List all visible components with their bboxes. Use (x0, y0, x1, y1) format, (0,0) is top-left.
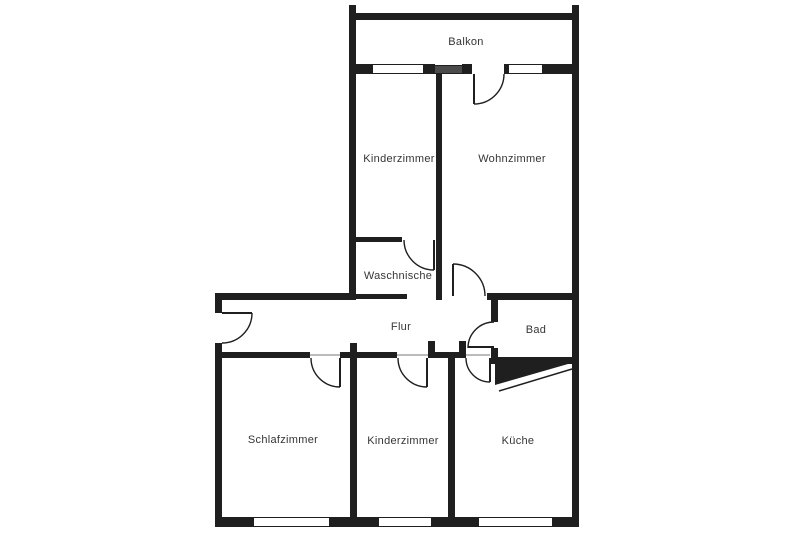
door-arc-wohnzimmer (453, 264, 485, 296)
floor-plan: Balkon Kinderzimmer Wohnzimmer Waschnisc… (0, 0, 800, 534)
door-arc-balcony (474, 74, 504, 104)
room-label-balkon: Balkon (448, 36, 483, 48)
door-arc-kueche (466, 358, 490, 382)
room-label-kinderzimmer-bottom: Kinderzimmer (367, 435, 438, 447)
door-arc-waschnische (404, 240, 434, 270)
door-arc-schlafzimmer (311, 358, 340, 387)
door-arc-entrance (222, 313, 252, 343)
room-label-schlafzimmer: Schlafzimmer (248, 434, 318, 446)
room-label-kueche: Küche (502, 435, 535, 447)
room-label-flur: Flur (391, 321, 411, 333)
room-label-kinderzimmer-top: Kinderzimmer (363, 153, 434, 165)
room-label-waschnische: Waschnische (364, 270, 432, 282)
room-label-wohnzimmer: Wohnzimmer (478, 153, 546, 165)
door-arc-kinderzimmer (398, 358, 427, 387)
door-arc-bad (468, 322, 494, 348)
room-label-bad: Bad (526, 324, 546, 336)
door-symbols-overlay (0, 0, 800, 534)
